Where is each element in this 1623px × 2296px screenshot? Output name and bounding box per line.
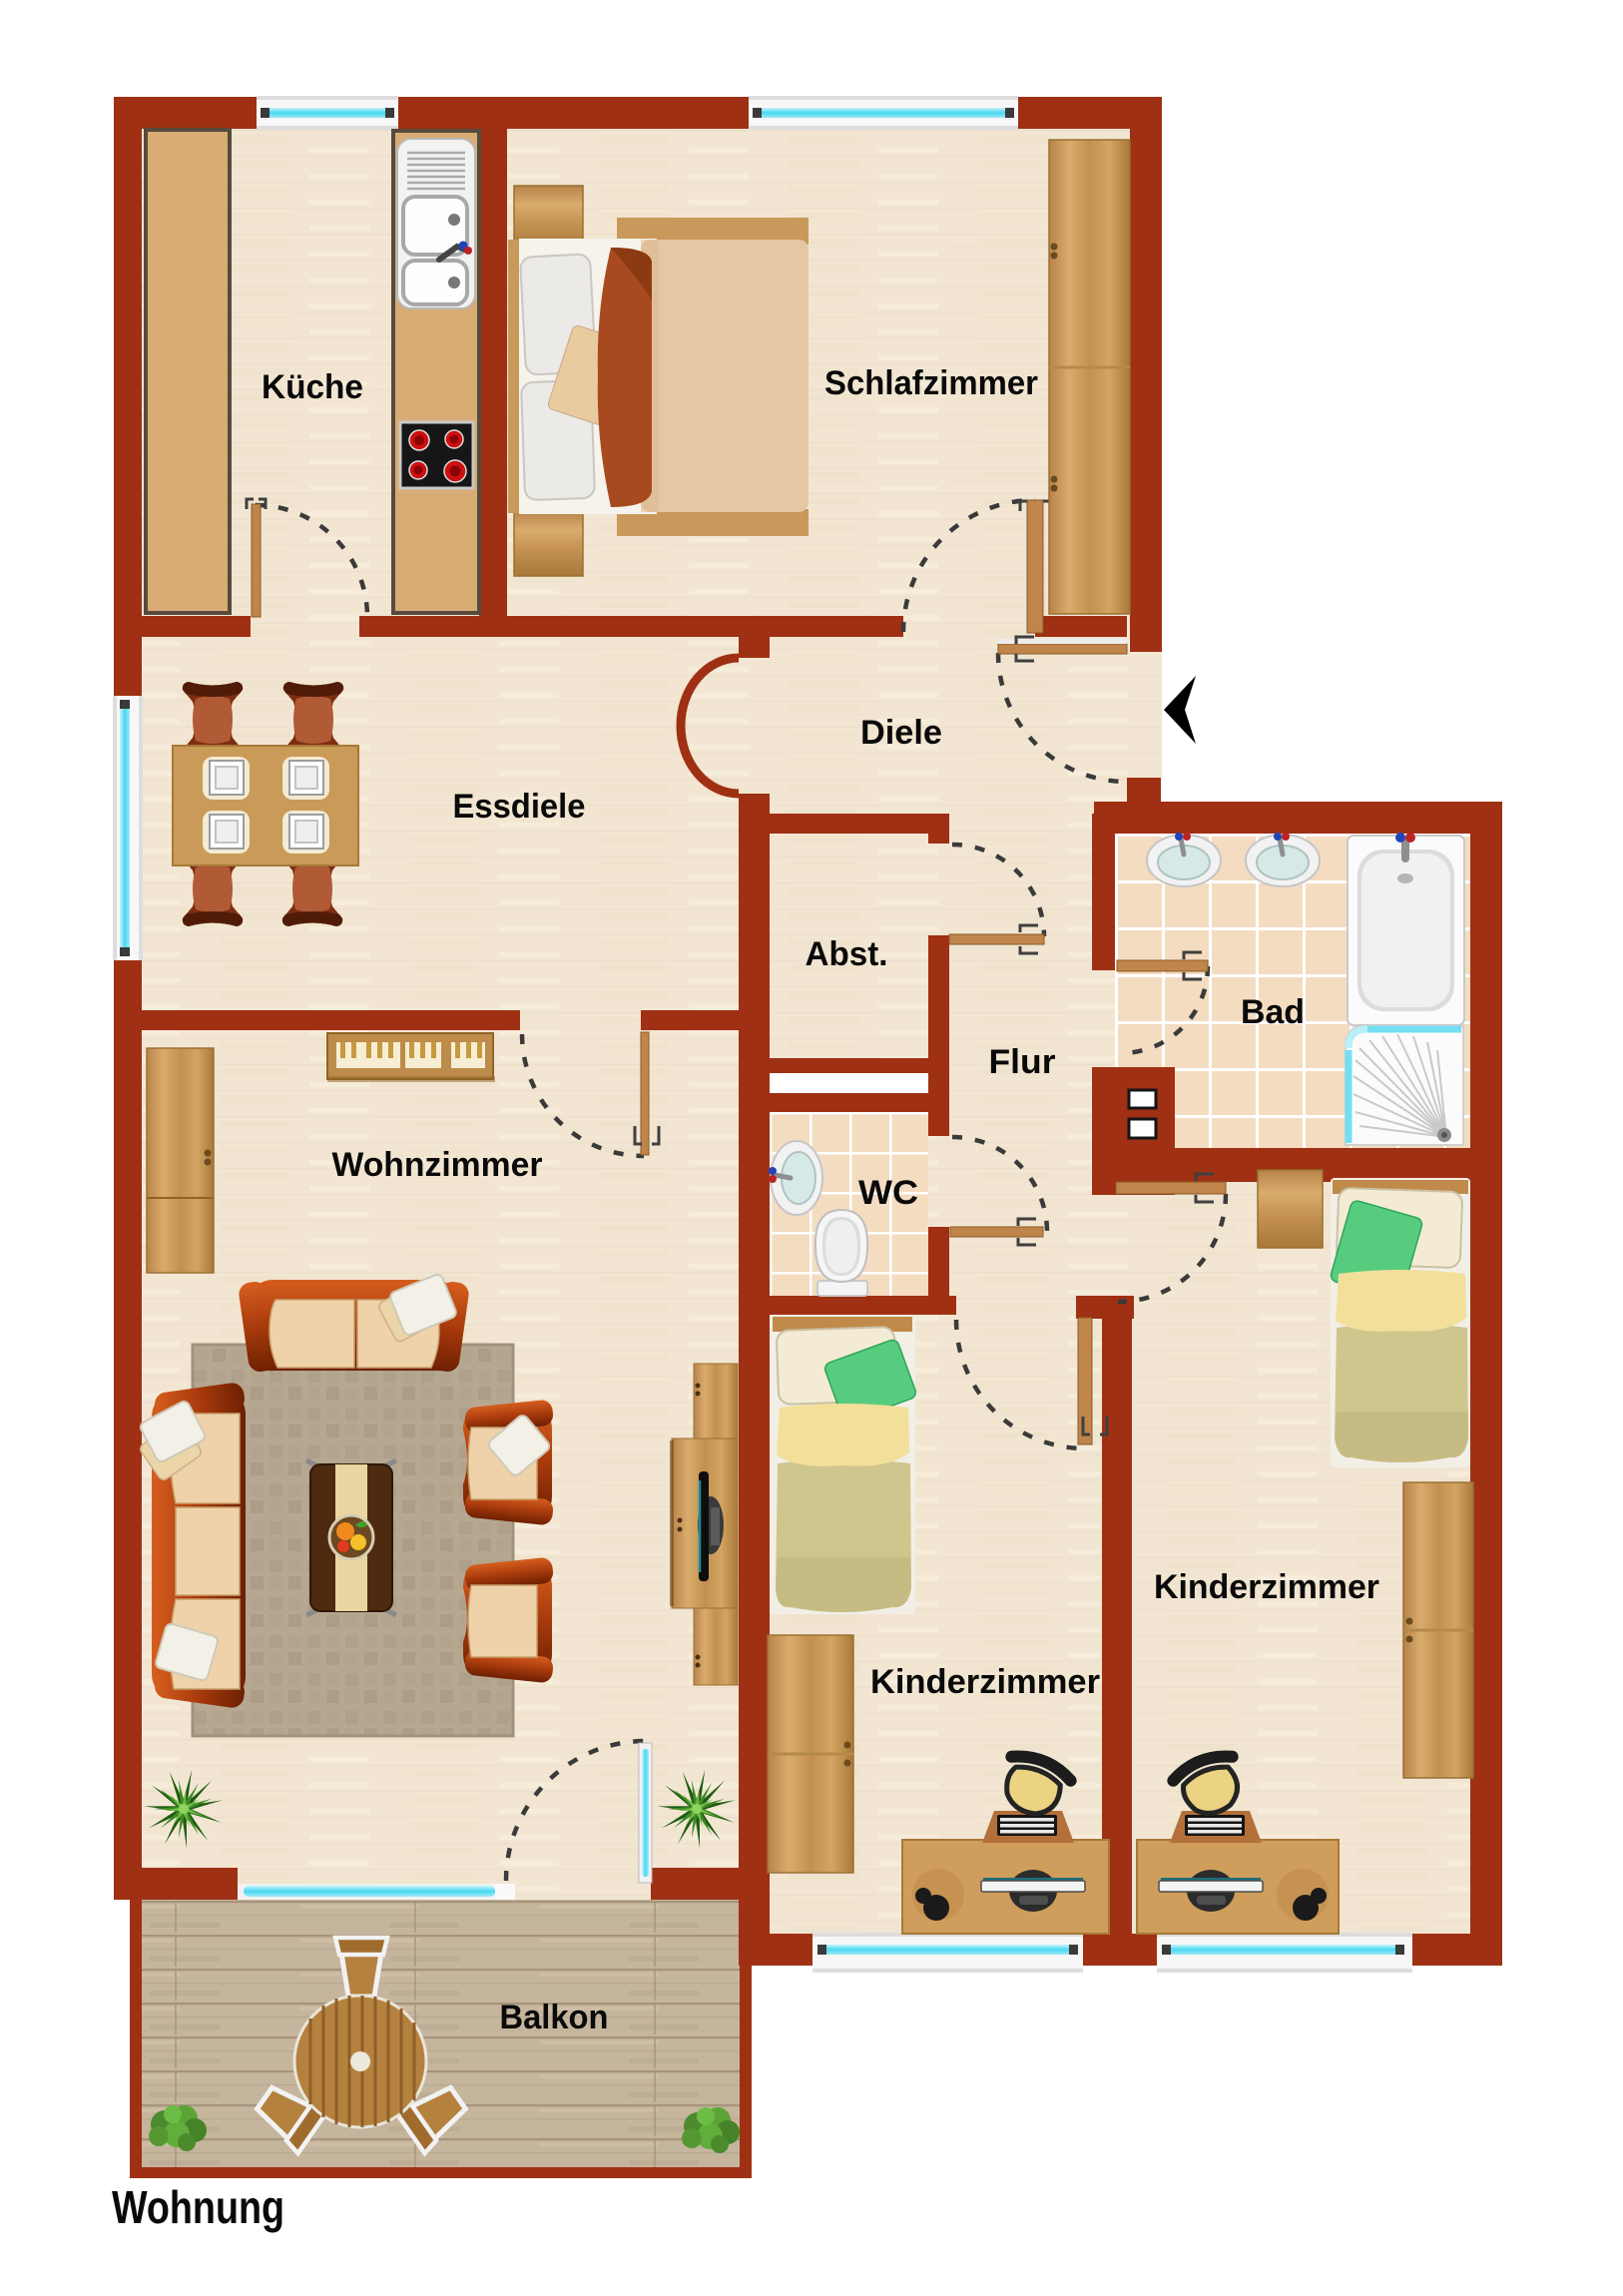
svg-text:Diele: Diele: [860, 714, 942, 752]
svg-text:Essdiele: Essdiele: [453, 788, 586, 826]
svg-text:Schlafzimmer: Schlafzimmer: [824, 364, 1038, 402]
svg-text:Abst.: Abst.: [806, 935, 888, 973]
svg-text:Kinderzimmer: Kinderzimmer: [1154, 1568, 1379, 1606]
svg-text:Wohnung: Wohnung: [112, 2181, 284, 2233]
svg-text:WC: WC: [858, 1174, 918, 1212]
svg-text:Balkon: Balkon: [500, 1999, 609, 2036]
svg-text:Kinderzimmer: Kinderzimmer: [870, 1663, 1100, 1701]
svg-text:Küche: Küche: [262, 368, 363, 406]
svg-text:Wohnzimmer: Wohnzimmer: [332, 1146, 543, 1184]
svg-text:Flur: Flur: [989, 1043, 1056, 1081]
svg-text:Bad: Bad: [1241, 993, 1305, 1031]
